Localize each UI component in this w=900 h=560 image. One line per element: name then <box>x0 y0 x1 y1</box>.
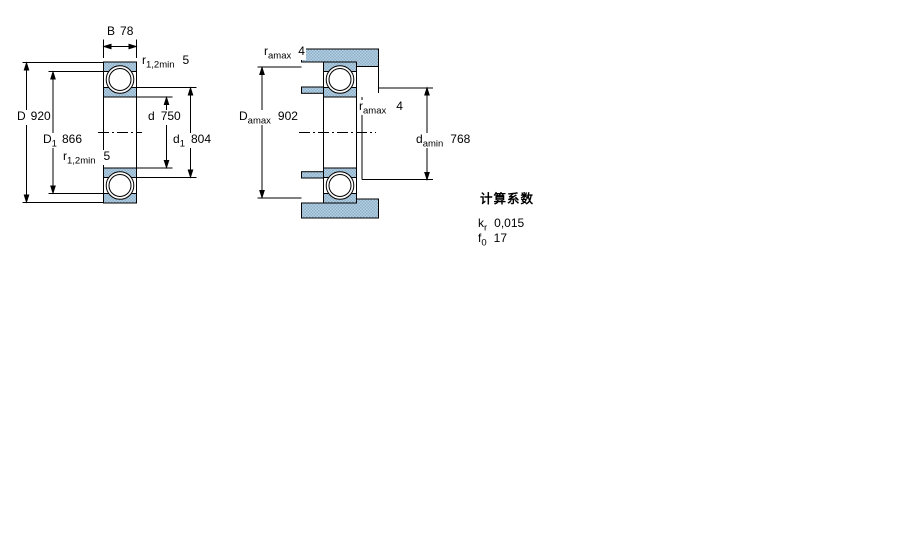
technical-drawing-canvas <box>0 0 900 560</box>
dim-value: 750 <box>161 110 181 123</box>
dim-sub: amax <box>248 115 271 126</box>
dim-value: 902 <box>278 110 298 123</box>
dim-Damax <box>258 67 302 198</box>
dim-value: 5 <box>104 150 111 163</box>
reference-edges <box>362 67 379 180</box>
dim-sub: 1,2min <box>67 155 96 166</box>
dim-label-d1: d1804 <box>172 133 212 148</box>
dim-symbol: d <box>416 132 423 146</box>
dim-sub: amax <box>363 105 386 116</box>
factor-sub: 0 <box>481 237 486 248</box>
dim-value: 4 <box>298 45 305 58</box>
dim-sub: amin <box>423 138 444 149</box>
dim-value: 5 <box>183 54 190 67</box>
dim-label-ramax-mid: ramax4 <box>358 100 404 115</box>
dim-value: 78 <box>120 25 133 38</box>
shaft-shoulder-bottom <box>302 172 324 178</box>
dim-label-r-top: r1,2min5 <box>141 54 190 69</box>
dim-sub: 1,2min <box>146 59 175 70</box>
dim-symbol: B <box>107 24 115 38</box>
dim-value: 866 <box>62 133 82 146</box>
dim-symbol: D <box>43 132 52 146</box>
shaft-shoulder-top <box>302 87 324 93</box>
factor-value: 17 <box>494 232 507 245</box>
bearing-drawing-page: B78 r1,2min5 D920 D1866 r1,2min5 d750 d1… <box>0 0 900 560</box>
dim-value: 804 <box>191 133 211 146</box>
dim-label-D1: D1866 <box>42 133 83 148</box>
dim-value: 4 <box>396 100 403 113</box>
dim-B <box>104 40 137 59</box>
dim-sub: 1 <box>52 138 57 149</box>
dim-sub: amax <box>268 50 291 61</box>
dim-label-ramax-top: ramax4 <box>263 45 306 60</box>
dim-label-d: d750 <box>147 110 182 125</box>
dim-label-B: B78 <box>106 25 134 40</box>
dim-symbol: d <box>148 109 155 123</box>
dim-symbol: D <box>17 109 26 123</box>
dim-value: 768 <box>450 133 470 146</box>
dim-label-damin: damin768 <box>415 133 471 148</box>
calc-factor-f0: f017 <box>477 232 508 247</box>
calc-factors-title: 计算系数 <box>479 193 535 206</box>
factor-value: 0,015 <box>494 217 524 230</box>
dim-label-Damax: Damax902 <box>238 110 299 125</box>
dim-value: 920 <box>31 110 51 123</box>
dim-sub: 1 <box>180 138 185 149</box>
dim-symbol: d <box>173 132 180 146</box>
dim-label-D: D920 <box>16 110 52 125</box>
dim-label-r-bottom: r1,2min5 <box>62 150 111 165</box>
dim-symbol: D <box>239 109 248 123</box>
